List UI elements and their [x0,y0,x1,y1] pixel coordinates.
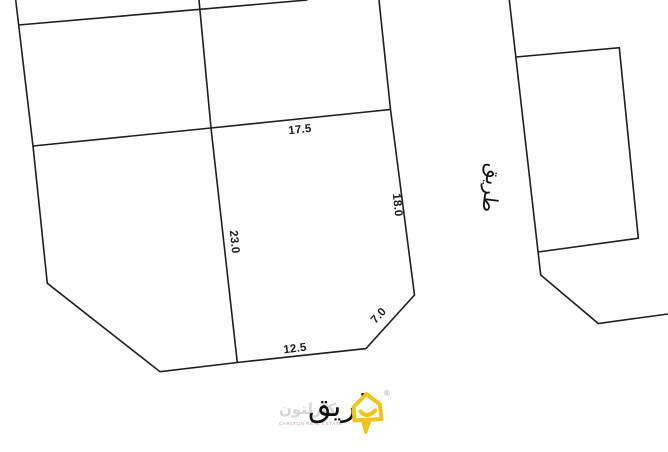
road-edge-line [509,0,668,324]
center-divider-line [199,0,237,363]
dimension-inner-west: 23.0 [226,229,240,253]
dimension-north: 17.5 [288,123,312,137]
site-plan-canvas: 17.5 18.0 23.0 12.5 7.0 طريق طريق كارلتو… [0,0,668,452]
house-chat-bubble-logo-icon [344,387,404,439]
dimension-east: 18.0 [389,193,403,217]
top-divider-line [18,0,307,25]
registered-trademark-symbol: ® [384,390,390,398]
plan-linework [0,0,668,452]
left-block-boundary [16,0,415,372]
